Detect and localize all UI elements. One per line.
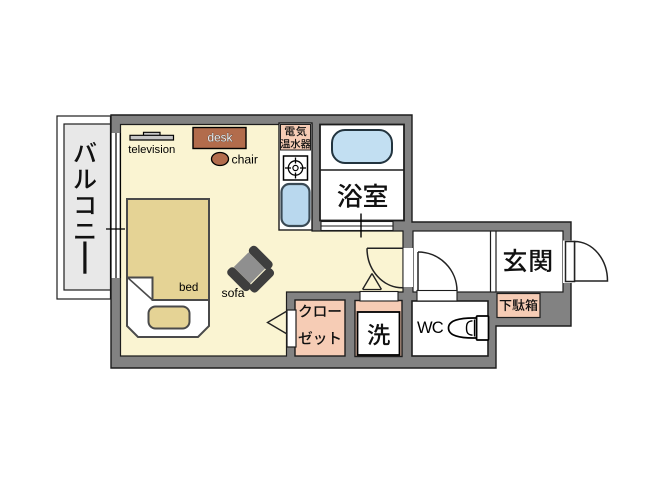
svg-text:television: television (128, 144, 175, 156)
svg-text:WC: WC (417, 319, 444, 337)
svg-text:sofa: sofa (222, 286, 245, 300)
svg-text:desk: desk (208, 131, 233, 145)
svg-text:chair: chair (232, 153, 258, 167)
svg-text:bed: bed (179, 281, 198, 294)
